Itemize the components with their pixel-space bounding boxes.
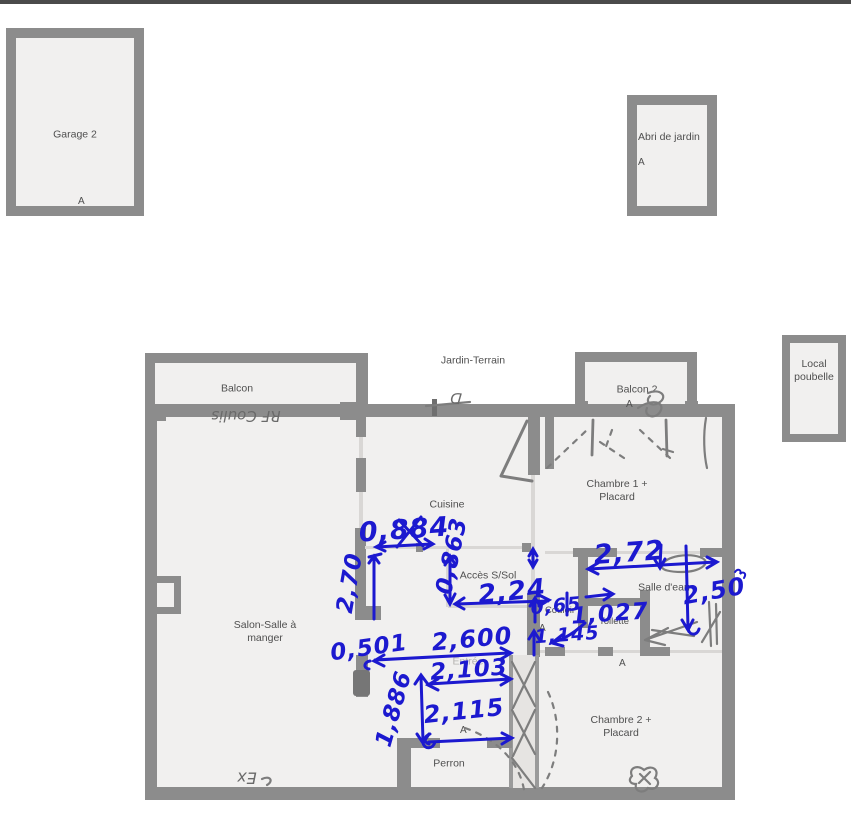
pencil-hatch xyxy=(702,602,720,646)
measurement-1145: 1,145 xyxy=(534,622,600,648)
measurement-0884: 0,884 xyxy=(358,511,450,548)
pencil-tick xyxy=(663,449,673,452)
pencil-note-jardin-door: D xyxy=(449,389,462,408)
pencil-note-balcony: RF Coulis xyxy=(211,407,280,425)
dim-1027 xyxy=(586,589,613,600)
pencil-tick xyxy=(426,402,470,406)
floor-plan-page: Garage 2 A Abri de jardin A Local poubel… xyxy=(0,0,851,814)
ink-overlay xyxy=(0,0,851,814)
doorway-hatch-lines xyxy=(512,662,535,788)
dim-small-vert xyxy=(529,549,537,567)
dim-270 xyxy=(369,554,381,619)
cuisine-door-swing xyxy=(501,421,532,481)
pencil-stroke xyxy=(704,418,707,468)
dim-0501-hook xyxy=(365,661,370,669)
page-bottom-rule xyxy=(0,0,851,4)
dim-2115 xyxy=(425,733,512,744)
measurement-2103: 2,103 xyxy=(429,654,508,685)
chambre2-scribble xyxy=(630,767,658,791)
balcon2-scribble xyxy=(638,391,663,416)
door-leaf xyxy=(592,420,593,455)
ex-arrow-hook xyxy=(262,778,271,785)
pencil-note-ex: Ex xyxy=(237,769,257,788)
measurement-272: 2,72 xyxy=(593,535,666,571)
